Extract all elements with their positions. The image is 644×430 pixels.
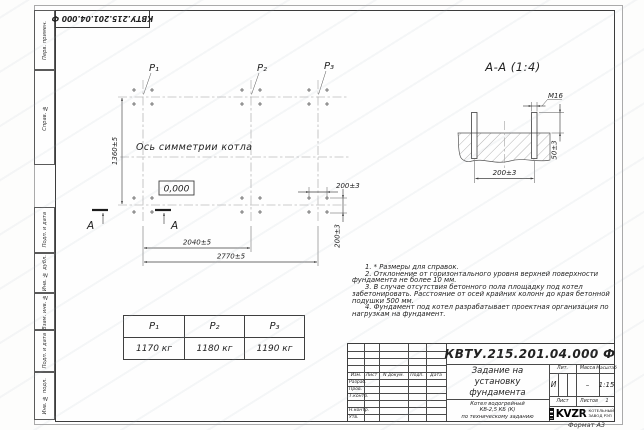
kvzr-logo-subtext: КОТЕЛЬНЫЙ ЗАВОД РЭП — [588, 409, 614, 418]
axis-of-symmetry-label: Ось симметрии котла — [136, 142, 252, 153]
kvzr-wave-icon — [549, 408, 554, 420]
load-table-header-p2: P₂ — [184, 316, 244, 337]
product-line-3: по техническому заданию — [461, 414, 533, 421]
row-label-razrab: Разраб. — [349, 379, 377, 386]
col-header-data: Дата — [426, 372, 446, 379]
p2-label: P₂ — [257, 63, 267, 74]
title-line-2: установку — [475, 377, 521, 388]
section-view: А-А (1:4) М16 50±3 200±3 — [458, 60, 564, 183]
section-title: А-А (1:4) — [484, 60, 541, 74]
scale-value: 1:15 — [599, 373, 614, 396]
note-2: 2. Отклонение от горизонтального уровня … — [352, 271, 614, 284]
plan-load-point-labels: P₁ P₂ P₃ — [144, 61, 335, 95]
company-logo: KVZR КОТЕЛЬНЫЙ ЗАВОД РЭП — [549, 406, 614, 421]
dim-200-section: 200±3 — [493, 169, 517, 177]
scale-header: Масштаб — [599, 364, 614, 373]
load-table-value-p1: 1170 кг — [124, 337, 184, 359]
p3-label: P₃ — [324, 61, 334, 72]
col-header-ndokum: N докум. — [379, 372, 408, 379]
dim-200-vertical: 200±3 — [334, 224, 342, 248]
mass-value: – — [576, 373, 599, 396]
dim-2770: 2770±5 — [217, 253, 246, 261]
drawing-title: Задание на установку фундамента — [446, 365, 549, 399]
sheet-label: Лист — [549, 396, 576, 406]
note-4: 4. Фундамент под котел разрабатывает про… — [352, 304, 614, 317]
load-table-value-p2: 1180 кг — [184, 337, 244, 359]
col-header-list: Лист — [364, 372, 379, 379]
lit-value: И — [549, 373, 558, 396]
sheets-value: 1 — [602, 396, 612, 406]
dim-1360: 1360±5 — [111, 136, 119, 165]
title-block-doc-number: КВТУ.215.201.04.000 Ф — [446, 344, 614, 364]
plan-dimensions: 1360±5 2040±5 2770±5 200±3 200±3 — [111, 98, 360, 266]
anchor-bolt-left — [472, 113, 478, 159]
dim-200-horizontal: 200±3 — [336, 182, 360, 190]
load-table-value-p3: 1190 кг — [244, 337, 304, 359]
title-line-3: фундамента — [469, 388, 525, 399]
notes-block: 1. * Размеры для справок. 2. Отклонение … — [352, 264, 614, 318]
section-cut-marks: А А — [86, 210, 178, 232]
kvzr-logo-text: KVZR — [556, 408, 587, 420]
dim-50-protrusion: 50±3 — [551, 140, 559, 159]
lit-header: Лит. — [549, 364, 576, 373]
col-header-podp: Подп. — [408, 372, 426, 379]
title-line-1: Задание на — [472, 366, 524, 377]
load-table-header-p1: P₁ — [124, 316, 184, 337]
bolt-thread-label: М16 — [548, 92, 563, 100]
level-mark: 0,000 — [164, 185, 190, 195]
load-table-header-p3: P₃ — [244, 316, 304, 337]
anchor-bolt-right — [532, 113, 538, 159]
title-block: Изм. Лист N докум. Подп. Дата Разраб. Пр… — [347, 343, 614, 421]
row-label-prov: Пров. — [349, 386, 377, 393]
row-label-nkontr: Н.контр. — [349, 407, 377, 414]
section-letter-a2: А — [170, 220, 178, 232]
row-label-utv: Утв. — [349, 414, 377, 421]
dim-2040: 2040±5 — [183, 239, 212, 247]
col-header-izm: Изм. — [348, 372, 364, 379]
section-letter-a1: А — [86, 220, 94, 232]
drawing-sheet: Перв. примен. Справ. № Подп. и дата Инв.… — [0, 0, 644, 430]
sheets-label: Листов — [578, 396, 600, 406]
p1-label: P₁ — [149, 63, 159, 74]
format-label: Формат А3 — [568, 421, 605, 429]
product-name: Котел водогрейный КВ-2,5 КБ (К) по техни… — [446, 400, 549, 421]
load-table: P₁ P₂ P₃ 1170 кг 1180 кг 1190 кг — [123, 315, 305, 360]
row-label-tkontr: Т.контр. — [349, 393, 377, 400]
note-3: 3. В случае отсутствия бетонного пола пл… — [352, 284, 614, 304]
